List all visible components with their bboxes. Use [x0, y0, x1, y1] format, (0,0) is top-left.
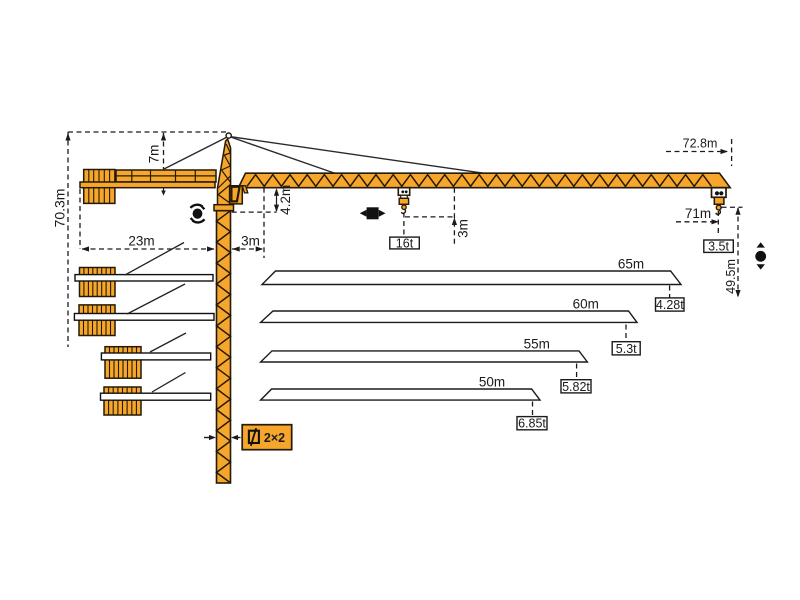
svg-text:2×2: 2×2 [264, 431, 285, 445]
svg-text:4.28t: 4.28t [656, 298, 684, 312]
svg-text:50m: 50m [479, 375, 505, 390]
svg-text:70.3m: 70.3m [52, 189, 68, 228]
svg-text:3m: 3m [456, 219, 471, 238]
svg-text:16t: 16t [396, 237, 414, 251]
svg-text:65m: 65m [618, 257, 644, 272]
svg-text:7m: 7m [147, 145, 162, 164]
svg-text:71m: 71m [685, 206, 711, 221]
svg-text:4.2m: 4.2m [278, 185, 293, 215]
svg-text:23m: 23m [128, 234, 154, 249]
svg-text:55m: 55m [524, 337, 550, 352]
svg-text:5.82t: 5.82t [562, 380, 590, 394]
svg-text:60m: 60m [573, 297, 599, 312]
svg-text:3m: 3m [241, 234, 260, 249]
svg-text:6.85t: 6.85t [518, 417, 546, 431]
svg-text:49.5m: 49.5m [724, 259, 738, 294]
svg-text:3.5t: 3.5t [708, 240, 729, 254]
svg-text:72.8m: 72.8m [683, 137, 718, 151]
svg-text:5.3t: 5.3t [616, 342, 637, 356]
